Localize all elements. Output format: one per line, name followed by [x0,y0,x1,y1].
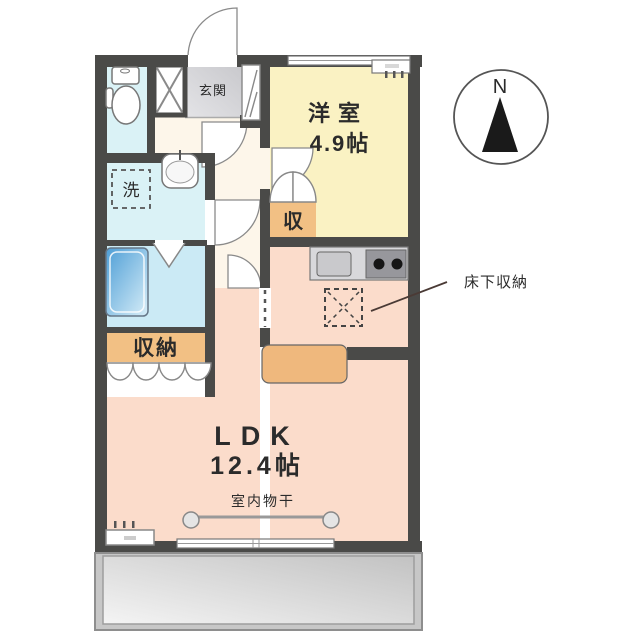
compass: N [454,70,548,164]
wall-western-bottom [260,237,409,247]
toilet-bowl [112,86,140,124]
wall-left [95,55,107,553]
floor-plan-page: N 洋室 4.9帖 LDK 12.4帖 玄関 収納 収 洗 室内物干 床下収納 [0,0,640,640]
wall-bath-divider-right [183,240,207,246]
entrance-opening [188,55,237,67]
stove-burner [374,259,385,270]
underfloor-storage-label: 床下収納 [464,274,528,291]
kitchen-low-counter [262,345,347,383]
wall-right [408,55,420,553]
wall-bath-closet-divider [107,327,207,333]
kitchen-counter [310,247,408,280]
ldk-name: LDK [214,421,300,451]
washbasin-bowl [166,161,194,183]
room-closet-label: 収 [283,210,304,233]
entrance-label: 玄関 [199,83,227,98]
laundry-label: 洗 [123,181,140,200]
bathtub-outer [106,248,148,316]
ldk-low-window-mark [124,536,136,540]
western-room-name: 洋室 [308,101,368,126]
shoe-cabinet [242,65,260,120]
wall-kitchen-ldk-stub [347,347,408,360]
entrance-door-swing [188,8,237,57]
bathtub-icon [106,248,148,316]
stove-burner [392,259,403,270]
vent-dot [393,71,396,78]
vent-dot [132,521,135,528]
compass-north-label: N [493,76,507,98]
western-door-opening [260,148,270,189]
vent-dot [385,71,388,78]
balcony [95,553,422,630]
vent-dot [401,71,404,78]
pipe-shaft [154,65,185,115]
vent-dot [114,521,117,528]
wall-bath-divider-left [107,240,155,246]
wall-western-left-lower [260,328,270,347]
drying-pole-end-left [183,512,199,528]
toilet-button [121,69,130,73]
ldk-size: 12.4帖 [210,452,304,480]
closet-label: 収納 [133,336,179,360]
balcony-inner [103,556,414,624]
wall-western-left-upper [260,55,270,148]
kitchen-sink [317,252,351,276]
washbasin-icon [162,150,198,188]
western-room-window-box-mark [385,64,399,68]
vent-dot [123,521,126,528]
floor-plan-drawing: N 洋室 4.9帖 LDK 12.4帖 玄関 収納 収 洗 室内物干 床下収納 [0,0,640,640]
drying-pole-end-right [323,512,339,528]
wall-washroom-right-upper [205,153,215,200]
indoor-drying-label: 室内物干 [231,493,295,509]
western-room-size: 4.9帖 [310,131,371,156]
